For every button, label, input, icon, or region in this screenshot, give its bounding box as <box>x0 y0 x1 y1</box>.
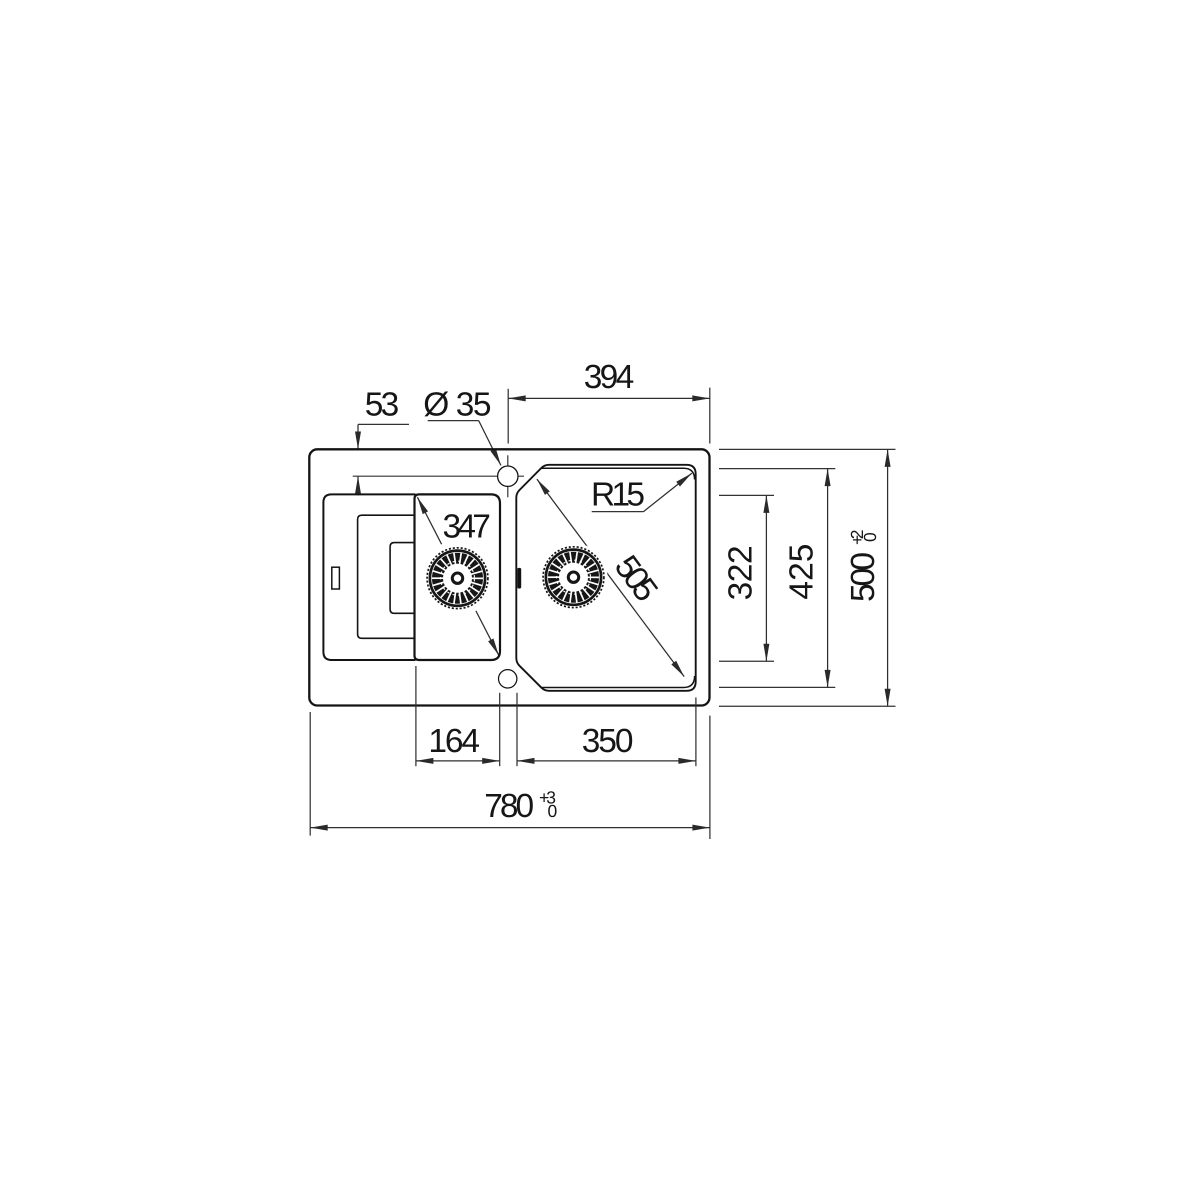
svg-text:164: 164 <box>428 723 480 760</box>
svg-text:R15: R15 <box>591 477 645 514</box>
svg-text:394: 394 <box>584 359 635 396</box>
svg-text:322: 322 <box>723 545 760 600</box>
svg-text:500: 500 <box>845 552 882 602</box>
svg-text:0: 0 <box>548 801 558 821</box>
svg-text:425: 425 <box>784 544 821 600</box>
svg-text:780: 780 <box>484 788 534 825</box>
svg-text:Ø 35: Ø 35 <box>423 386 491 423</box>
svg-text:347: 347 <box>442 508 491 545</box>
svg-text:350: 350 <box>582 723 634 760</box>
svg-text:0: 0 <box>860 532 880 542</box>
svg-text:53: 53 <box>365 386 400 423</box>
